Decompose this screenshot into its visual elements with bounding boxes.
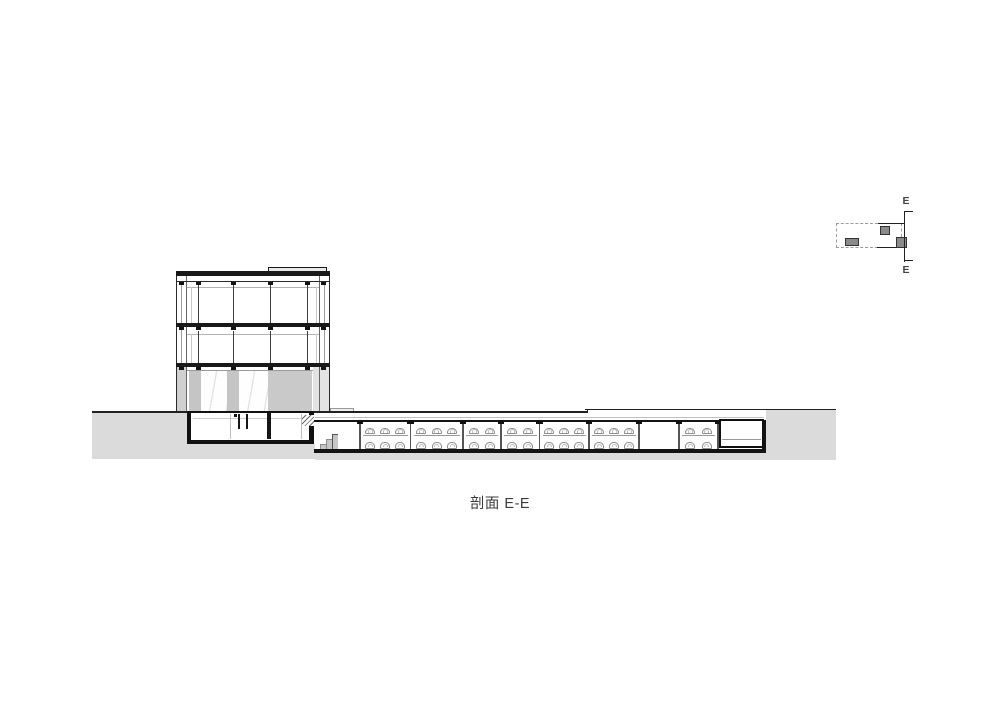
garage-column-6 (588, 424, 590, 450)
garage-lift-platform-7 (592, 435, 636, 436)
keyplan-block-upper (880, 226, 891, 236)
parked-car-upper-bay7-2 (609, 428, 619, 435)
garage-lift-platform-6 (543, 435, 587, 436)
parked-car-lower-bay6-3 (574, 442, 584, 449)
parked-car-lower-bay2-1 (365, 442, 375, 449)
parked-car-upper-bay6-1 (544, 428, 554, 435)
garage-column-4 (500, 424, 502, 450)
drawing-caption: 剖面 E-E (420, 492, 580, 513)
garage-column-2 (410, 424, 412, 450)
parked-car-upper-bay2-3 (395, 428, 405, 435)
section-drawing-canvas: E E 剖面 E-E (0, 0, 1000, 706)
parked-car-lower-bay2-2 (380, 442, 390, 449)
garage-lift-platform-5 (504, 435, 537, 436)
parked-car-lower-bay3-3 (447, 442, 457, 449)
garage-column-3 (462, 424, 464, 450)
section-cut-tick-bottom (904, 260, 913, 261)
parked-car-upper-bay5-1 (507, 428, 517, 435)
parked-car-upper-bay4-2 (485, 428, 495, 435)
parked-car-lower-bay5-1 (507, 442, 517, 449)
garage-column-7 (638, 424, 640, 450)
section-cut-tick-top (904, 211, 913, 212)
keyplan-block-left (845, 238, 859, 247)
parked-car-lower-bay3-2 (432, 442, 442, 449)
parked-car-upper-bay3-2 (432, 428, 442, 435)
keyplan-wall-top (878, 223, 905, 224)
parked-car-upper-bay5-2 (523, 428, 533, 435)
garage-column-5 (539, 424, 541, 450)
garage-column-9 (717, 424, 719, 450)
garage-column-8 (678, 424, 680, 450)
parked-car-upper-bay7-1 (594, 428, 604, 435)
parked-car-upper-bay6-3 (574, 428, 584, 435)
garage-lift-platform-4 (466, 435, 498, 436)
parked-car-lower-bay9-2 (702, 442, 712, 449)
garage-lift-platform-9 (682, 435, 715, 436)
garage-lift-platform-3 (414, 435, 461, 436)
section-mark-label-bottom: E (900, 264, 912, 276)
parked-car-lower-bay5-2 (523, 442, 533, 449)
parked-car-lower-bay4-2 (485, 442, 495, 449)
parked-car-lower-bay7-2 (609, 442, 619, 449)
parked-car-upper-bay2-1 (365, 428, 375, 435)
garage-lift-platform-2 (363, 435, 408, 436)
parked-car-upper-bay9-1 (685, 428, 695, 435)
garage-column-1 (359, 424, 361, 450)
parked-car-upper-bay4-1 (469, 428, 479, 435)
garage-parking-layer (0, 0, 1000, 706)
parked-car-upper-bay3-1 (416, 428, 426, 435)
parked-car-lower-bay6-2 (559, 442, 569, 449)
parked-car-upper-bay2-2 (380, 428, 390, 435)
parked-car-lower-bay2-3 (395, 442, 405, 449)
parked-car-lower-bay3-1 (416, 442, 426, 449)
section-cut-line (904, 211, 905, 262)
parked-car-upper-bay9-2 (702, 428, 712, 435)
parked-car-lower-bay9-1 (685, 442, 695, 449)
parked-car-lower-bay6-1 (544, 442, 554, 449)
parked-car-upper-bay7-3 (624, 428, 634, 435)
parked-car-upper-bay6-2 (559, 428, 569, 435)
parked-car-lower-bay7-3 (624, 442, 634, 449)
parked-car-lower-bay4-1 (469, 442, 479, 449)
parked-car-upper-bay3-3 (447, 428, 457, 435)
parked-car-lower-bay7-1 (594, 442, 604, 449)
section-mark-label-top: E (900, 195, 912, 207)
